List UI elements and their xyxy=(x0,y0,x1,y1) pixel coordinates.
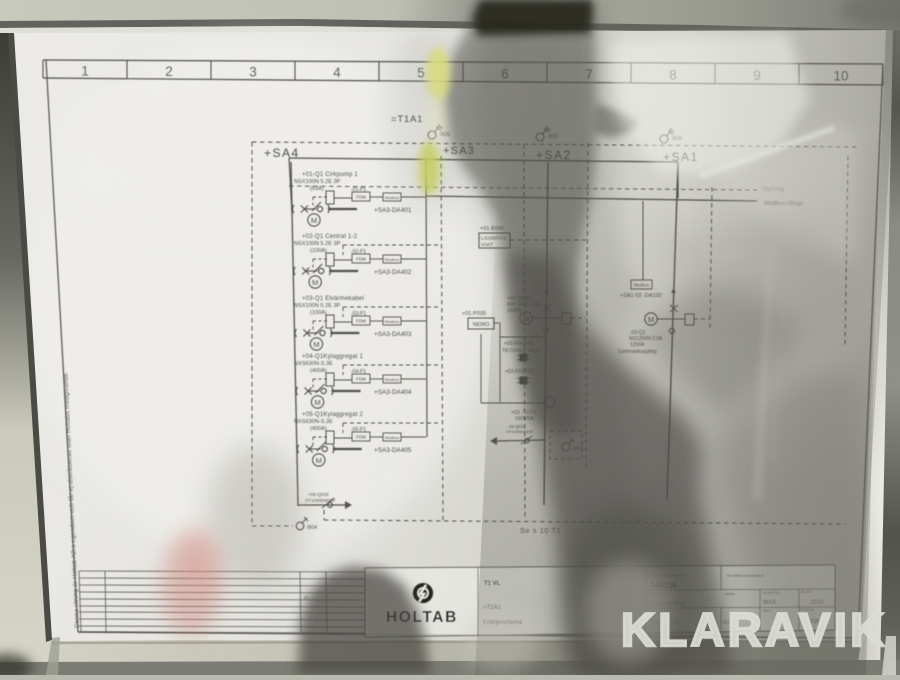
svg-text:NSX100N 5.2E 3P: NSX100N 5.2E 3P xyxy=(294,303,341,309)
svg-text:NXS630N-S.3E: NXS630N-S.3E xyxy=(294,419,333,425)
svg-text:M: M xyxy=(311,216,317,225)
svg-text:1: 1 xyxy=(81,63,89,78)
svg-text:FDM: FDM xyxy=(356,195,366,200)
svg-text:+05-Q1Kylaggregat 2: +05-Q1Kylaggregat 2 xyxy=(302,412,363,418)
svg-text:+SA3-DA402: +SA3-DA402 xyxy=(374,269,412,276)
svg-text:Modbus: Modbus xyxy=(385,195,399,200)
svg-text:KLARAVIK: KLARAVIK xyxy=(621,603,888,656)
svg-text:Modbus: Modbus xyxy=(385,435,399,440)
svg-text:+SA3-DA405: +SA3-DA405 xyxy=(374,447,412,454)
svg-text:(100A): (100A) xyxy=(310,310,327,316)
svg-text:+02-Q1 Central 1-2: +02-Q1 Central 1-2 xyxy=(302,234,358,240)
svg-text:FDM: FDM xyxy=(356,319,366,324)
svg-text:NSX100N 5.2E 3P: NSX100N 5.2E 3P xyxy=(294,241,341,247)
svg-text:M: M xyxy=(312,278,318,287)
svg-text:FDM: FDM xyxy=(356,435,366,440)
svg-text:-B04: -B04 xyxy=(306,525,317,531)
svg-text:4: 4 xyxy=(333,65,341,80)
svg-text:FDM: FDM xyxy=(356,257,366,262)
svg-text:+03-Q1 Elvärmekabel: +03-Q1 Elvärmekabel xyxy=(302,296,364,302)
svg-text:Modbus: Modbus xyxy=(385,319,399,324)
svg-text:+SA3-DA401: +SA3-DA401 xyxy=(374,207,412,214)
svg-text:M: M xyxy=(314,398,320,407)
svg-text:(100A): (100A) xyxy=(310,248,327,254)
svg-text:+04-Q1Kylaggregat 1: +04-Q1Kylaggregat 1 xyxy=(302,354,363,360)
svg-text:+SA3-DA404: +SA3-DA404 xyxy=(374,389,412,396)
svg-text:Modbus: Modbus xyxy=(385,257,399,262)
svg-text:FDM: FDM xyxy=(356,377,366,382)
svg-text:3: 3 xyxy=(249,65,257,80)
svg-text:(400A): (400A) xyxy=(310,368,327,374)
svg-text:(63A): (63A) xyxy=(310,186,324,192)
svg-text:OT1000EM03P: OT1000EM03P xyxy=(305,498,335,503)
svg-text:Modbus: Modbus xyxy=(385,377,399,382)
svg-text:NSX100N 5.2E 3P: NSX100N 5.2E 3P xyxy=(294,179,341,185)
svg-text:2: 2 xyxy=(165,64,173,79)
svg-text:(400A): (400A) xyxy=(310,426,327,432)
svg-text:+SA3-DA403: +SA3-DA403 xyxy=(374,331,412,338)
svg-text:+06-Q033: +06-Q033 xyxy=(308,492,329,497)
svg-text:M: M xyxy=(316,456,322,465)
svg-text:M: M xyxy=(313,340,319,349)
svg-text:NXS630N-S.3E: NXS630N-S.3E xyxy=(294,361,333,367)
svg-text:+01-Q1 Cirkpump 1: +01-Q1 Cirkpump 1 xyxy=(302,172,358,178)
